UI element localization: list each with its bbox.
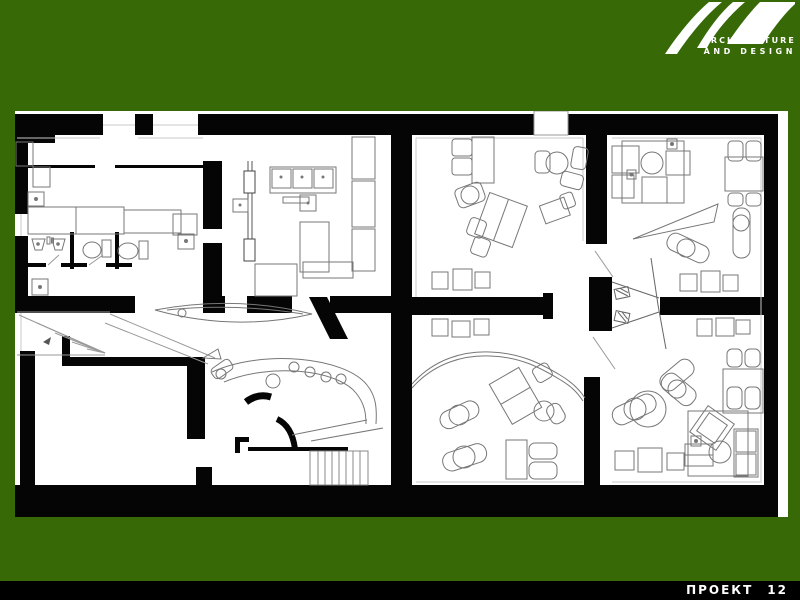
company-logo: ARCHITECTURE AND DESIGN bbox=[642, 0, 800, 66]
project-label: ПРОЕКТ12 bbox=[686, 583, 788, 597]
floor-plan-drawing bbox=[15, 111, 788, 517]
presentation-slide: { "slide": { "background_color": "#376A0… bbox=[0, 0, 800, 600]
project-word: ПРОЕКТ bbox=[686, 583, 753, 597]
logo-line-and-design: AND DESIGN bbox=[703, 47, 796, 56]
footer-bar: ПРОЕКТ12 bbox=[0, 581, 800, 600]
logo-text: ARCHITECTURE AND DESIGN bbox=[703, 36, 796, 56]
logo-line-architecture: ARCHITECTURE bbox=[703, 36, 796, 45]
project-number: 12 bbox=[767, 583, 788, 597]
floor-plan bbox=[15, 111, 788, 517]
